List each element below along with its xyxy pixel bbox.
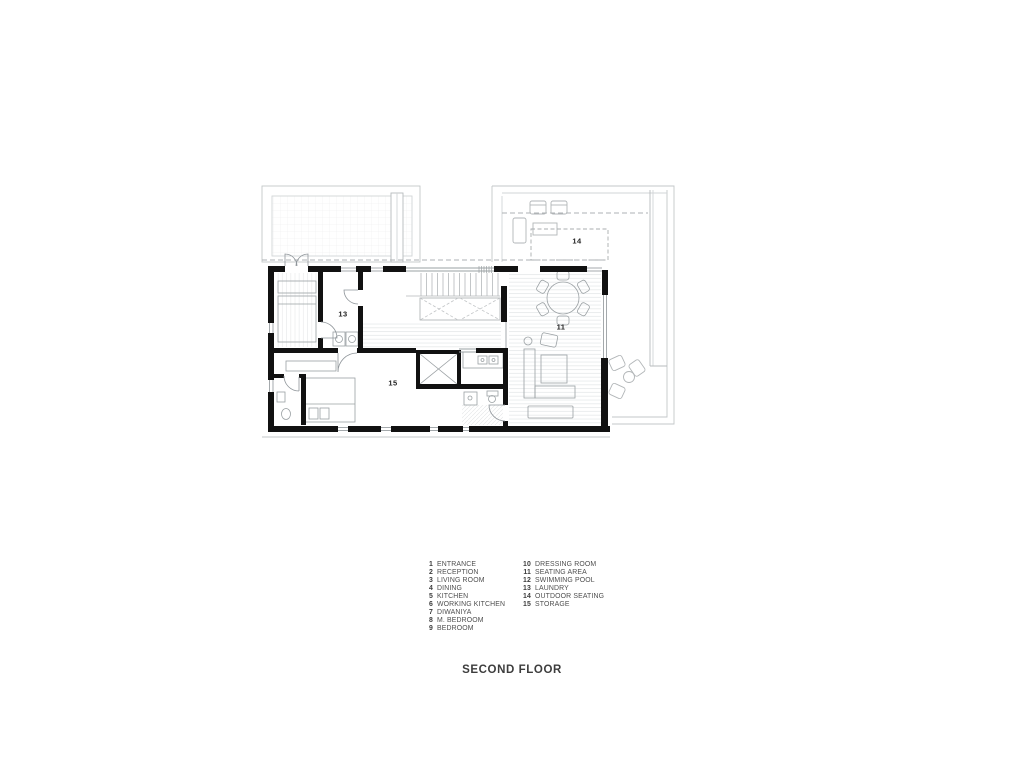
- legend-item: 5KITCHEN: [423, 593, 505, 601]
- legend-label: DRESSING ROOM: [535, 561, 596, 569]
- legend-column-1: 1ENTRANCE 2RECEPTION 3LIVING ROOM 4DININ…: [423, 561, 505, 633]
- room-label-storage: 15: [388, 379, 397, 388]
- legend-number: 8: [423, 617, 433, 625]
- legend-label: DIWANIYA: [437, 609, 472, 617]
- legend-number: 14: [521, 593, 531, 601]
- legend-item: 1ENTRANCE: [423, 561, 505, 569]
- legend-item: 14OUTDOOR SEATING: [521, 593, 604, 601]
- legend-label: WORKING KITCHEN: [437, 601, 505, 609]
- legend-number: 6: [423, 601, 433, 609]
- legend-item: 8M. BEDROOM: [423, 617, 505, 625]
- legend-label: LAUNDRY: [535, 585, 569, 593]
- legend-label: ENTRANCE: [437, 561, 476, 569]
- legend-label: RECEPTION: [437, 569, 479, 577]
- legend-item: 11SEATING AREA: [521, 569, 604, 577]
- terrace-top-left: [262, 186, 420, 262]
- legend-item: 9BEDROOM: [423, 625, 505, 633]
- legend-label: M. BEDROOM: [437, 617, 484, 625]
- legend-item: 2RECEPTION: [423, 569, 505, 577]
- legend-column-2: 10DRESSING ROOM 11SEATING AREA 12SWIMMIN…: [521, 561, 604, 609]
- room-label-outdoor-seating: 14: [572, 237, 581, 246]
- legend-number: 9: [423, 625, 433, 633]
- legend-item: 13LAUNDRY: [521, 585, 604, 593]
- legend-item: 15STORAGE: [521, 601, 604, 609]
- legend-item: 3LIVING ROOM: [423, 577, 505, 585]
- legend-label: BEDROOM: [437, 625, 474, 633]
- legend-label: KITCHEN: [437, 593, 468, 601]
- legend-label: SWIMMING POOL: [535, 577, 595, 585]
- legend-label: OUTDOOR SEATING: [535, 593, 604, 601]
- legend-label: SEATING AREA: [535, 569, 587, 577]
- legend-number: 1: [423, 561, 433, 569]
- legend-label: STORAGE: [535, 601, 570, 609]
- legend-number: 10: [521, 561, 531, 569]
- legend-label: DINING: [437, 585, 462, 593]
- legend-number: 7: [423, 609, 433, 617]
- legend-number: 3: [423, 577, 433, 585]
- legend-number: 5: [423, 593, 433, 601]
- legend-item: 6WORKING KITCHEN: [423, 601, 505, 609]
- legend-number: 12: [521, 577, 531, 585]
- elevator-shaft: [418, 352, 459, 386]
- legend-label: LIVING ROOM: [437, 577, 485, 585]
- legend-item: 10DRESSING ROOM: [521, 561, 604, 569]
- legend-item: 4DINING: [423, 585, 505, 593]
- sheet: 13 15 11 14 1ENTRANCE 2RECEPTION 3LIVING…: [0, 0, 1024, 768]
- room-label-laundry: 13: [338, 310, 347, 319]
- legend-number: 15: [521, 601, 531, 609]
- sheet-title: SECOND FLOOR: [462, 664, 562, 676]
- legend-number: 13: [521, 585, 531, 593]
- legend-item: 7DIWANIYA: [423, 609, 505, 617]
- legend-item: 12SWIMMING POOL: [521, 577, 604, 585]
- room-label-seating-area: 11: [557, 323, 566, 332]
- staircase: [406, 273, 500, 320]
- legend-number: 11: [521, 569, 531, 577]
- legend-number: 2: [423, 569, 433, 577]
- legend-number: 4: [423, 585, 433, 593]
- floor-plan-drawing: [0, 0, 1024, 768]
